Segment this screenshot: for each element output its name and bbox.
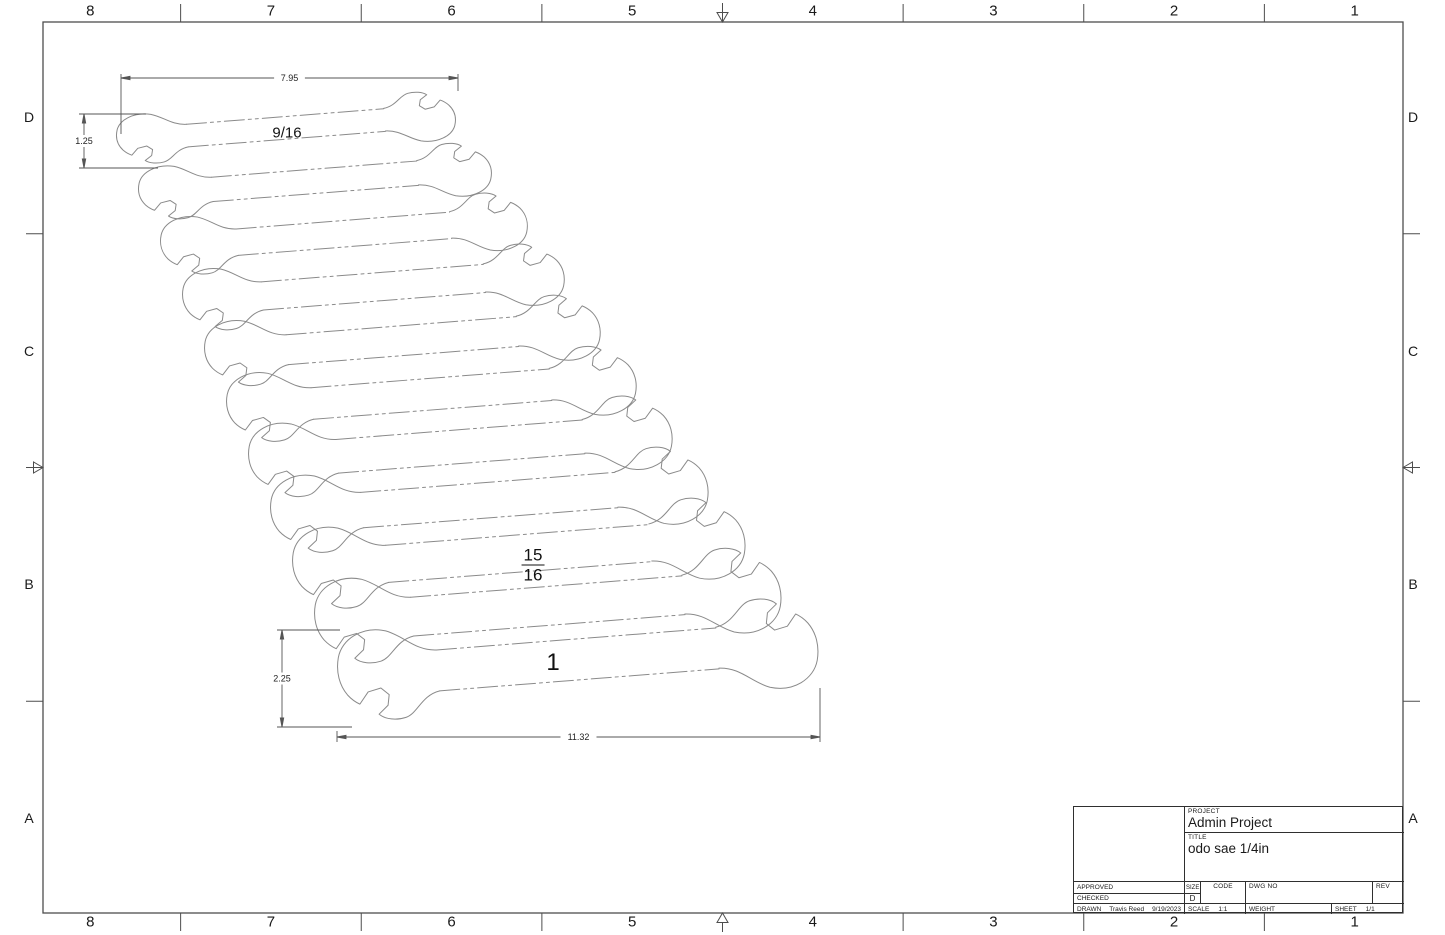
wrench-shaft-bottom-line — [238, 239, 451, 256]
wrench-outline-9 — [290, 494, 748, 612]
wrench-right-head — [613, 443, 710, 528]
weight-label: WEIGHT — [1249, 906, 1275, 913]
sheet-cell: SHEET 1/1 — [1332, 904, 1404, 914]
wrench-shaft-bottom-line — [314, 401, 552, 420]
drawn-cell: DRAWN Travis Reed 9/19/2023 — [1074, 904, 1185, 914]
wrench-right-head — [647, 494, 748, 583]
sheet-value: 1/1 — [1366, 906, 1375, 913]
wrench-left-head — [290, 523, 391, 612]
border-frame — [43, 22, 1403, 913]
wrench-right-head — [548, 343, 639, 419]
approved-label: APPROVED — [1074, 882, 1184, 893]
dimension-1.25: 1.25 — [72, 114, 158, 168]
wrench-size-label: 1 — [546, 651, 559, 675]
zone-column-label-bottom: 1 — [1351, 914, 1359, 931]
dimension-arrowhead — [280, 718, 283, 727]
title-value: odo sae 1/4in — [1185, 841, 1404, 856]
zone-row-label-right: D — [1408, 109, 1418, 125]
wrench-left-head — [137, 162, 215, 222]
project-cell: PROJECT Admin Project — [1185, 807, 1404, 833]
dimension-arrowhead — [811, 735, 820, 738]
checked-label: CHECKED — [1074, 894, 1184, 903]
project-value: Admin Project — [1185, 815, 1404, 830]
wrench-shaft-top-line — [336, 420, 582, 439]
dimension-arrowhead — [82, 159, 85, 168]
zone-column-label-bottom: 6 — [447, 914, 455, 931]
zone-column-label-bottom: 8 — [86, 914, 94, 931]
fraction-numerator: 15 — [522, 547, 545, 566]
wrench-outline-5 — [202, 292, 602, 389]
zone-column-label-top: 5 — [628, 3, 636, 20]
zone-row-label-left: B — [24, 576, 33, 592]
title-cell: TITLE odo sae 1/4in — [1185, 833, 1404, 882]
wrench-right-head — [680, 544, 784, 637]
dimension-label: 2.25 — [273, 674, 291, 684]
drawing-sheet: 7.951.252.2511.32 8877665544332211DDCCBB… — [0, 0, 1445, 935]
scale-label: SCALE — [1188, 906, 1209, 913]
dimension-arrowhead — [449, 76, 458, 79]
zone-row-label-left: A — [24, 810, 33, 826]
scale-value: 1:1 — [1218, 906, 1227, 913]
size-value-cell: D — [1185, 894, 1201, 904]
wrench-left-head — [312, 574, 416, 667]
dimension-label: 11.32 — [568, 732, 590, 742]
title-block-blank-cell — [1074, 807, 1185, 882]
zone-column-label-top: 3 — [989, 3, 997, 20]
zone-column-label-top: 7 — [267, 3, 275, 20]
zone-column-label-top: 8 — [86, 3, 94, 20]
dimension-arrowhead-shape — [82, 114, 85, 123]
wrench-shaft-top-line — [261, 264, 483, 281]
approved-cell: APPROVED — [1074, 882, 1185, 894]
fraction-denominator: 16 — [522, 566, 545, 584]
wrench-left-head — [159, 213, 240, 277]
zone-row-label-left: D — [24, 109, 34, 125]
wrench-shaft-top-line — [236, 212, 449, 229]
wrench-right-head — [383, 89, 457, 145]
center-marker-bottom — [717, 913, 728, 923]
zone-row-label-right: B — [1408, 576, 1417, 592]
rev-cell: REV — [1373, 882, 1404, 904]
wrench-left-head — [202, 317, 289, 389]
dimension-arrowhead-shape — [82, 159, 85, 168]
wrench-shaft-top-line — [411, 576, 682, 597]
zone-column-label-top: 2 — [1170, 3, 1178, 20]
wrench-shaft-bottom-line — [364, 508, 618, 528]
dimension-arrowhead-shape — [449, 76, 458, 79]
wrench-right-head — [581, 392, 675, 473]
wrench-shaft-bottom-line — [389, 562, 652, 583]
wrench-right-head — [515, 292, 602, 364]
wrench-size-label-fraction: 1516 — [522, 547, 545, 584]
dimension-arrowhead-shape — [337, 735, 346, 738]
wrench-left-head — [115, 111, 189, 167]
zone-column-label-bottom: 3 — [989, 914, 997, 931]
wrench-right-head — [415, 140, 493, 200]
dimension-arrowhead-shape — [280, 718, 283, 727]
wrench-shaft-top-line — [286, 317, 516, 335]
project-label: PROJECT — [1185, 807, 1404, 815]
zone-column-label-bottom: 5 — [628, 914, 636, 931]
wrench-outline-3 — [159, 190, 530, 278]
title-label: TITLE — [1185, 833, 1404, 841]
dwg-no-label: DWG NO — [1246, 882, 1372, 890]
zone-row-label-right: A — [1408, 810, 1417, 826]
wrench-shaft-top-line — [187, 109, 384, 125]
scale-cell: SCALE 1:1 — [1185, 904, 1246, 914]
checked-cell: CHECKED — [1074, 894, 1185, 904]
weight-cell: WEIGHT — [1246, 904, 1332, 914]
cad-drawing-canvas: 7.951.252.2511.32 — [0, 0, 1445, 935]
wrench-shaft-bottom-line — [339, 454, 585, 473]
zone-column-label-bottom: 7 — [267, 914, 275, 931]
zone-column-label-top: 4 — [809, 3, 817, 20]
code-cell: CODE — [1201, 882, 1246, 904]
dimension-arrowhead — [337, 735, 346, 738]
size-cell: SIZE — [1185, 882, 1201, 894]
wrench-outline-11 — [335, 595, 821, 724]
zone-column-label-top: 6 — [447, 3, 455, 20]
dimension-arrowhead-shape — [811, 735, 820, 738]
wrench-left-head — [246, 419, 340, 500]
wrench-left-head — [268, 471, 365, 556]
wrench-shaft-top-line — [386, 525, 649, 546]
wrench-shaft-bottom-line — [213, 185, 418, 201]
dwg-no-cell: DWG NO — [1246, 882, 1373, 904]
code-label: CODE — [1201, 882, 1245, 890]
wrench-outline-8 — [268, 443, 710, 556]
wrench-left-head — [335, 625, 442, 723]
dimension-label: 1.25 — [75, 136, 93, 146]
sheet-label: SHEET — [1335, 906, 1357, 913]
wrench-outline-2 — [137, 140, 493, 222]
zone-row-label-right: C — [1408, 343, 1418, 359]
size-value: D — [1185, 894, 1200, 903]
rev-label: REV — [1373, 882, 1404, 890]
wrench-right-head — [714, 595, 821, 693]
dimension-arrowhead — [121, 76, 130, 79]
wrench-shaft-top-line — [211, 161, 416, 177]
wrench-shaft-bottom-line — [289, 347, 519, 365]
drawn-label: DRAWN — [1077, 906, 1101, 913]
wrench-outline-6 — [224, 343, 638, 445]
zone-column-label-bottom: 2 — [1170, 914, 1178, 931]
title-block: PROJECT Admin Project TITLE odo sae 1/4i… — [1073, 806, 1403, 913]
wrench-shaft-bottom-line — [264, 293, 486, 310]
wrench-shaft-top-line — [311, 369, 549, 388]
dimension-arrowhead-shape — [280, 630, 283, 639]
wrench-size-label: 9/16 — [272, 126, 301, 141]
wrench-shaft-bottom-line — [440, 669, 719, 691]
drawn-name: Travis Reed — [1109, 906, 1144, 913]
dimension-label: 7.95 — [281, 73, 299, 83]
dimension-arrowhead-shape — [121, 76, 130, 79]
wrench-shaft-top-line — [361, 472, 615, 492]
zone-row-label-left: C — [24, 343, 34, 359]
drawn-date: 9/19/2023 — [1152, 906, 1181, 913]
zone-column-label-top: 1 — [1351, 3, 1359, 20]
wrench-outline-4 — [181, 241, 567, 334]
wrench-shaft-bottom-line — [414, 615, 685, 636]
dimension-arrowhead — [82, 114, 85, 123]
wrench-left-head — [224, 369, 315, 445]
dimension-arrowhead — [280, 630, 283, 639]
zone-column-label-bottom: 4 — [809, 914, 817, 931]
size-label: SIZE — [1185, 882, 1200, 893]
